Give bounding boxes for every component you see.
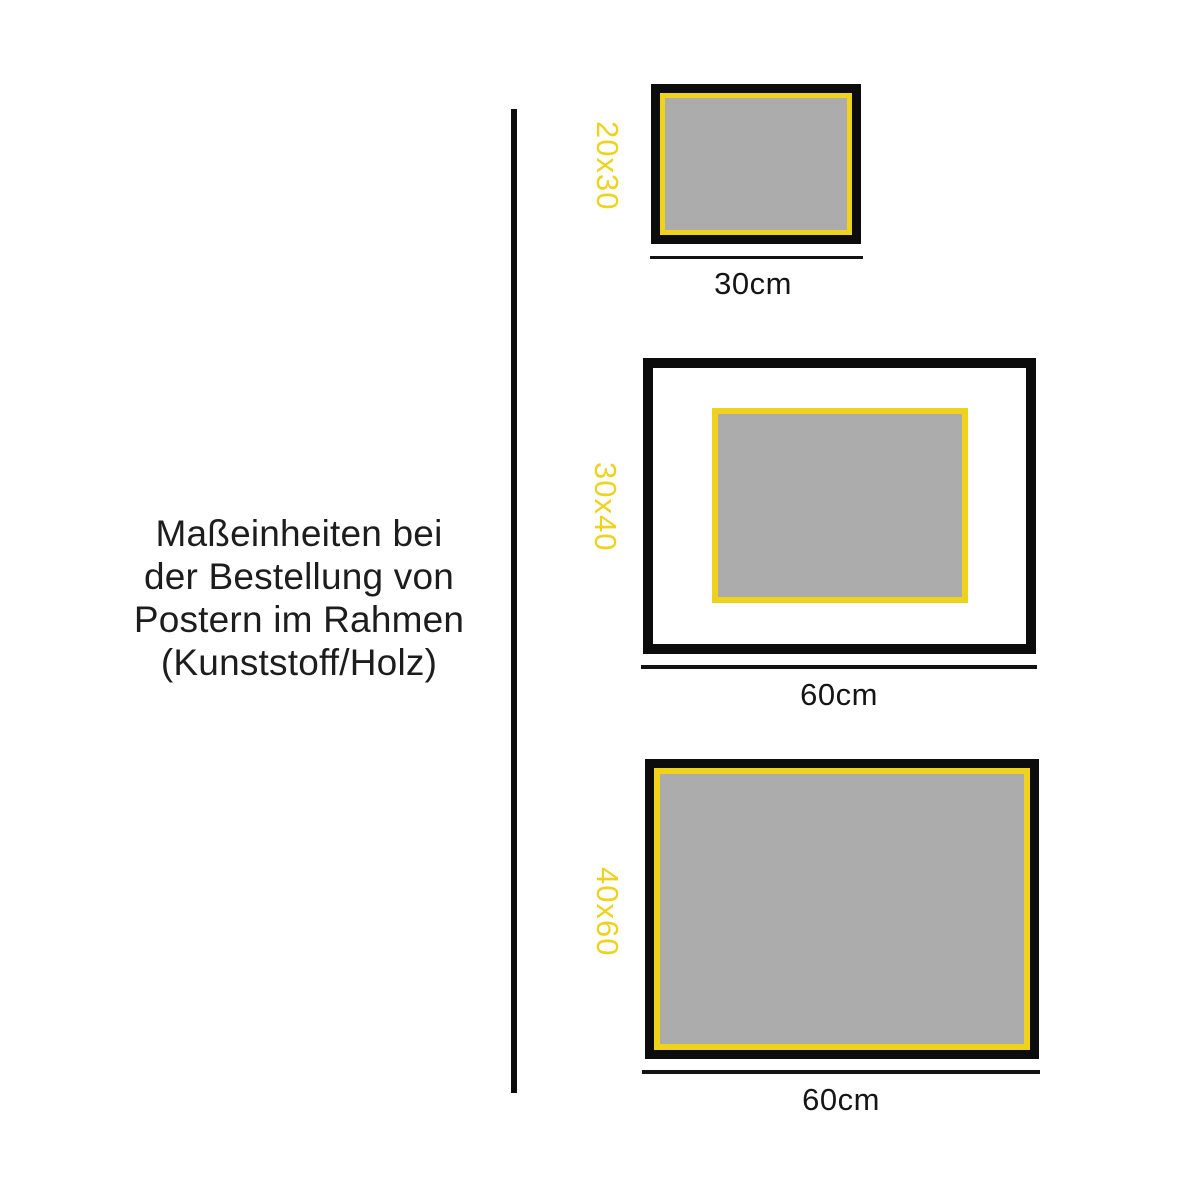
width-measure-line-20x30 — [650, 256, 863, 259]
poster-area-30x40 — [712, 408, 968, 603]
intro-line-3: Postern im Rahmen — [118, 598, 480, 641]
width-measure-label-20x30: 30cm — [628, 266, 878, 302]
intro-line-4: (Kunststoff/Holz) — [118, 641, 480, 684]
frame-40x60 — [645, 759, 1039, 1059]
size-label-40x60: 40x60 — [590, 867, 624, 951]
poster-area-20x30 — [660, 93, 852, 235]
width-measure-label-30x40: 60cm — [714, 677, 964, 713]
size-label-30x40: 30x40 — [588, 462, 622, 546]
vertical-divider — [511, 109, 517, 1093]
width-measure-line-40x60 — [642, 1070, 1040, 1074]
width-measure-line-30x40 — [641, 665, 1037, 669]
size-label-20x30: 20x30 — [590, 121, 624, 205]
poster-size-diagram: Maßeinheiten bei der Bestellung von Post… — [0, 0, 1200, 1200]
width-measure-label-40x60: 60cm — [716, 1082, 966, 1118]
frame-20x30 — [651, 84, 861, 244]
intro-line-1: Maßeinheiten bei — [118, 512, 480, 555]
intro-text: Maßeinheiten bei der Bestellung von Post… — [118, 512, 480, 684]
poster-area-40x60 — [654, 768, 1030, 1050]
intro-line-2: der Bestellung von — [118, 555, 480, 598]
frame-30x40 — [643, 358, 1036, 654]
